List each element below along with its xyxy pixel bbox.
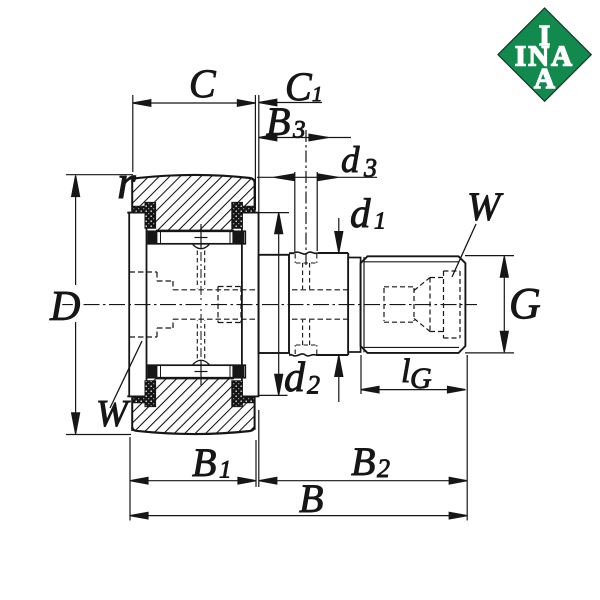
svg-text:D: D <box>49 284 80 330</box>
svg-text:W: W <box>96 393 131 435</box>
svg-text:3: 3 <box>292 117 306 144</box>
svg-text:W: W <box>467 184 504 229</box>
svg-text:G: G <box>410 362 432 395</box>
svg-text:B: B <box>351 439 375 484</box>
svg-text:C: C <box>189 61 217 106</box>
svg-text:1: 1 <box>374 209 386 235</box>
svg-text:d: d <box>284 355 306 401</box>
svg-text:d: d <box>350 190 371 236</box>
svg-text:2: 2 <box>307 371 320 400</box>
svg-text:1: 1 <box>219 457 232 484</box>
svg-text:G: G <box>509 279 541 328</box>
svg-text:2: 2 <box>377 454 390 483</box>
svg-text:r: r <box>117 156 136 209</box>
svg-text:B: B <box>299 476 323 521</box>
svg-text:A: A <box>534 63 555 95</box>
svg-text:d: d <box>341 140 360 181</box>
svg-text:B: B <box>266 99 290 144</box>
svg-text:1: 1 <box>312 82 323 106</box>
svg-text:3: 3 <box>363 154 377 183</box>
svg-text:B: B <box>192 440 216 485</box>
